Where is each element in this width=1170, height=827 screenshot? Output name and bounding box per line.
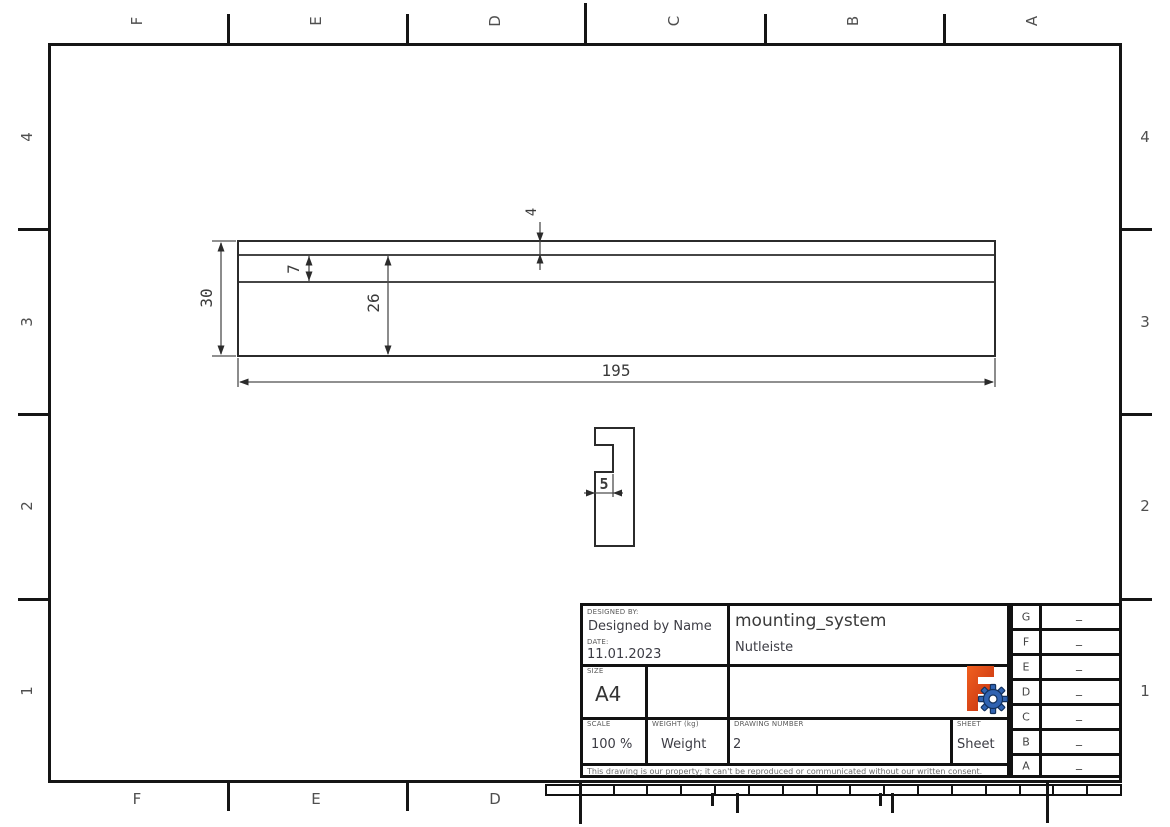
scale-value: 100 %: [591, 737, 632, 752]
strip-cell: [985, 784, 1021, 796]
profile-outline: [238, 241, 995, 356]
drawing-number-label: DRAWING NUMBER: [734, 720, 804, 728]
dimension-195: 195: [238, 358, 995, 387]
size-value: A4: [595, 682, 621, 706]
revision-letter: G: [1022, 611, 1031, 624]
dimension-26: 26: [364, 256, 392, 355]
strip-tick: [1046, 783, 1049, 823]
divider: [1013, 628, 1119, 631]
weight-label: WEIGHT (kg): [652, 720, 699, 728]
dimension-value: 26: [364, 293, 383, 312]
divider: [583, 763, 1007, 766]
arrowhead: [218, 346, 225, 356]
dimension-7: 7: [284, 256, 313, 281]
sheet-value: Sheet: [957, 737, 995, 752]
disclaimer-text: This drawing is our property; it can't b…: [587, 767, 982, 776]
designed-by-label: DESIGNED BY:: [587, 608, 639, 616]
strip-tick: [736, 793, 739, 813]
divider: [1013, 703, 1119, 706]
revision-value: _: [1076, 756, 1082, 770]
arrowhead: [306, 256, 313, 266]
arrowhead: [306, 272, 313, 282]
strip-cell: [579, 784, 615, 796]
strip-cell: [613, 784, 649, 796]
strip-tick: [711, 793, 714, 806]
size-label: SIZE: [587, 667, 604, 675]
divider: [1013, 653, 1119, 656]
revision-letter: A: [1022, 760, 1030, 773]
strip-cell: [1052, 784, 1088, 796]
drawing-subtitle: Nutleiste: [735, 640, 793, 655]
strip-cell: [883, 784, 919, 796]
main-view: [238, 241, 995, 356]
revision-value: _: [1076, 632, 1082, 646]
dimension-30: 30: [197, 241, 236, 356]
strip-cell: [714, 784, 750, 796]
divider: [1013, 728, 1119, 731]
logo-gear-icon: [979, 685, 1008, 714]
strip-cell: [748, 784, 784, 796]
revision-value: _: [1076, 732, 1082, 746]
arrowhead: [385, 346, 392, 356]
strip-tick: [579, 783, 582, 824]
strip-tick: [891, 793, 894, 813]
revision-letter: F: [1023, 636, 1029, 649]
strip-cell: [646, 784, 682, 796]
drawing-number-value: 2: [733, 737, 741, 752]
dimension-value: 5: [599, 475, 608, 493]
arrowhead: [985, 379, 995, 386]
revision-value: _: [1076, 607, 1082, 621]
dimension-4: 4: [524, 208, 544, 270]
dimension-value: 195: [602, 361, 631, 380]
scale-label: SCALE: [587, 720, 610, 728]
strip-cell: [545, 784, 581, 796]
strip-cell: [816, 784, 852, 796]
revision-letter: D: [1022, 686, 1030, 699]
divider: [1013, 753, 1119, 756]
revision-value: _: [1076, 657, 1082, 671]
divider: [1039, 606, 1042, 775]
strip-cell: [917, 784, 953, 796]
freecad-logo: [963, 665, 1009, 716]
strip-cell: [1086, 784, 1122, 796]
revision-letter: C: [1022, 711, 1030, 724]
dimension-value: 30: [197, 288, 216, 307]
dimension-value: 4: [524, 208, 540, 216]
drawing-title: mounting_system: [735, 611, 886, 631]
title-block: DESIGNED BY: Designed by Name DATE: 11.0…: [580, 603, 1010, 778]
divider: [950, 717, 953, 763]
strip-tick: [879, 793, 882, 806]
revision-value: _: [1076, 707, 1082, 721]
arrowhead: [385, 256, 392, 266]
revision-letter: E: [1023, 661, 1030, 674]
measurement-strip: [545, 784, 1122, 796]
drawing-sheet: F E D C B A F E D 4 3 2 1 4 3 2 1 30: [0, 0, 1170, 827]
weight-value: Weight: [661, 737, 706, 752]
divider: [1013, 678, 1119, 681]
date-label: DATE:: [587, 638, 609, 646]
arrowhead: [613, 490, 622, 497]
revision-table: G F E D C B A _ _ _ _ _ _ _: [1010, 603, 1122, 778]
strip-cell: [951, 784, 987, 796]
dimension-value: 7: [284, 264, 303, 274]
dimension-5: 5: [584, 474, 623, 497]
date-value: 11.01.2023: [587, 647, 661, 662]
revision-letter: B: [1022, 736, 1030, 749]
divider: [645, 664, 648, 763]
arrowhead: [586, 490, 595, 497]
arrowhead: [239, 379, 249, 386]
strip-cell: [1019, 784, 1055, 796]
sheet-label: SHEET: [957, 720, 981, 728]
divider: [727, 606, 730, 763]
designed-by-value: Designed by Name: [588, 619, 712, 634]
strip-cell: [782, 784, 818, 796]
arrowhead: [218, 242, 225, 252]
revision-value: _: [1076, 682, 1082, 696]
